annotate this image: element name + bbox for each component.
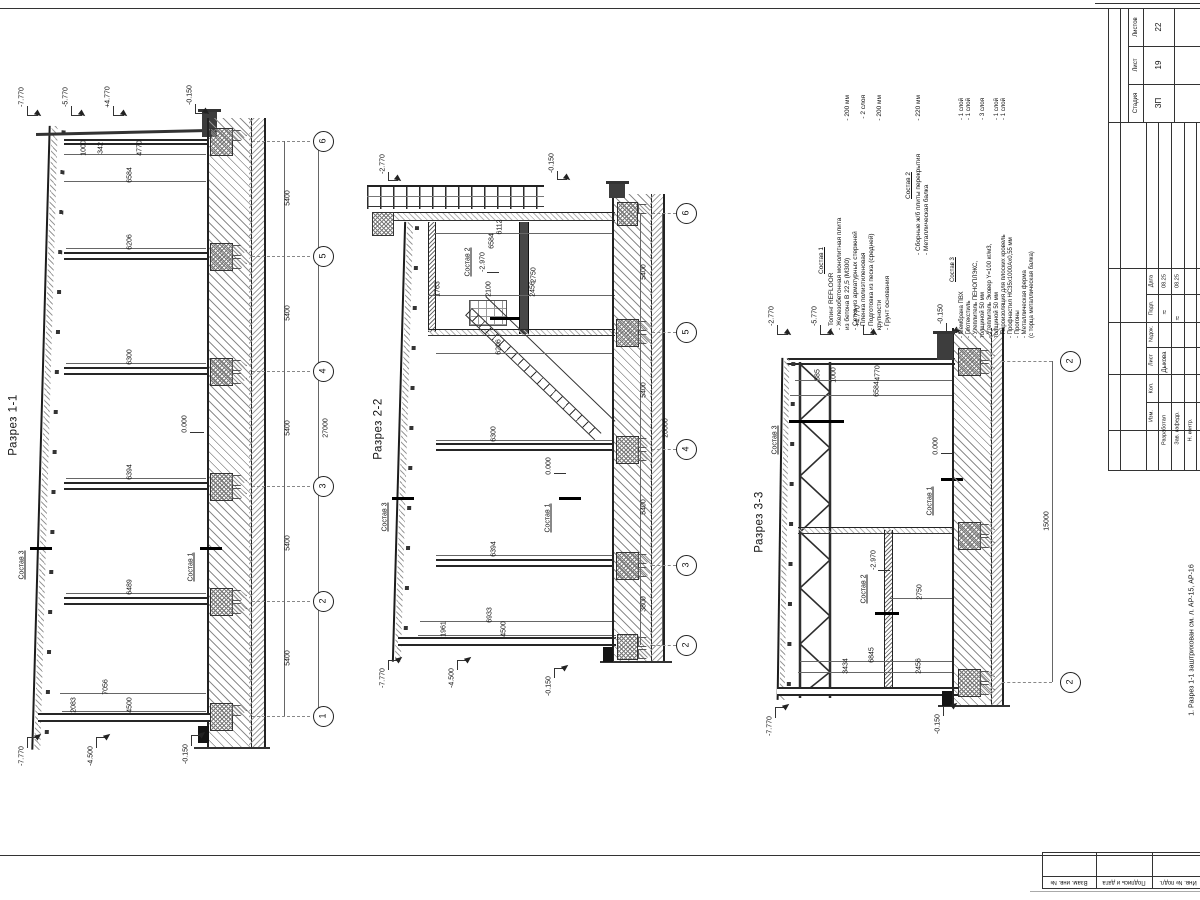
frame-bottom-line [0,855,1200,856]
tb-date: 08.25 [1162,274,1168,288]
axis-label: 6 [319,138,328,143]
composition-label: Состав 1 [927,486,934,515]
note-line: толщиной 50 мм- 1 слой [994,98,1001,338]
column [64,367,207,375]
line [457,660,458,670]
note-line: - Сборные ж/б плиты перекрытия- 220 мм [915,95,923,255]
coping-line [606,181,629,184]
dim-line [800,661,952,662]
dim-label: 2456 [916,658,923,674]
note-value: - 2 слоя [860,95,868,119]
note-value: - 1 слой [1001,98,1008,120]
section-mark [200,547,222,550]
line [1042,876,1200,877]
dim-label: 6584 [127,167,134,183]
bay-dim: 5400 [641,382,648,398]
dim-line [66,248,206,249]
signature: ≈ [1174,316,1182,320]
note-text: - Пароизоляция для плоских кровель [1001,234,1008,338]
axis-leader [1002,361,1052,362]
axis-leader [252,141,310,142]
line [190,432,204,433]
note-line: из бетона В 22,5 (М300)- 200 мм [844,95,852,330]
line [1120,8,1121,470]
line [1042,888,1200,889]
line [1108,268,1200,269]
line [1146,122,1147,470]
section-mark [789,420,844,423]
line [1171,122,1172,470]
section-mark [490,317,520,320]
elevation-arrow-icon [394,174,403,183]
anchor [958,669,981,697]
note-line: (с торца металлическая балка) [1029,98,1036,338]
anchor [210,703,233,731]
note-text: - Утеплитель ПЕНОПЛЭКС, [973,261,980,338]
note-line: - Утеплитель ПЕНОПЛЭКС, [973,98,980,338]
wall-hatch [952,328,992,706]
drawing-sheet: Разрез 1-1 [0,0,1200,900]
line [487,272,499,273]
axis-label: 4 [682,446,691,451]
roof-edge [777,358,798,700]
dim-label: 6206 [127,234,134,250]
line [191,735,192,746]
bay-dim: 5400 [285,420,292,436]
dim-line [66,478,206,479]
line [1196,122,1197,470]
note-line: - Сетка из арматурных стержней [852,95,860,330]
composition-label: Состав 2 [465,247,472,276]
note-text: - Сборные ж/б плиты перекрытия [915,154,923,255]
section-mark [30,547,52,550]
dim-label: 1763 [435,281,442,297]
dim-label: 2456 [530,281,537,297]
wall-hatch-2 [249,118,266,748]
elevation-label: -0.150 [935,714,942,734]
dim-label: 6206 [496,339,503,355]
axis-leader [252,486,310,487]
total-dim: 20000 [663,418,670,437]
bay-dim: 5400 [641,264,648,280]
axis-leader [1002,682,1052,683]
anchor [958,522,981,550]
note-text: толщиной 50 мм [980,292,987,338]
axis-leader [252,716,310,717]
dim-label: 1000 [831,367,838,383]
note-line: - Металлическая балка [923,95,931,255]
interior-wall [428,222,436,332]
column [64,482,207,490]
tb-role: Н. контр. [1188,419,1194,442]
axis-label: 5 [319,253,328,258]
section-title: Разрез 2-2 [373,398,385,459]
dim-line [436,555,614,556]
ground-line [194,747,270,749]
dim-label: 6584 [489,233,496,249]
line [27,737,28,748]
note-header: Состав 3 [950,98,957,282]
note-line: - Металлическая ферма [1022,98,1029,338]
line [1143,8,1144,122]
total-dim: 15000 [1044,511,1051,530]
note-value: - 1 слой [994,98,1001,120]
tb-header-cell: Изм. [1149,410,1155,422]
elevation-label: -7.770 [19,746,26,766]
axis-label: 1 [319,713,328,718]
line [1146,347,1200,348]
bay-dim: 5400 [285,535,292,551]
stair-flight [465,308,601,440]
frame-top-line2 [1095,3,1200,4]
signature: ≈ [1161,310,1169,314]
railing-support [372,212,394,236]
dim-label: 6300 [127,349,134,365]
note-line: - Железобетонная монолитная плита [836,95,844,330]
section-title: Разрез 1-1 [8,394,20,455]
line [554,668,555,678]
elevation-label: -0.150 [546,676,553,696]
frame-top-line [0,8,1200,9]
line [1108,322,1200,323]
line [943,706,944,716]
elevation-label: -0.150 [938,304,945,324]
line [1184,122,1185,470]
line [1042,852,1200,853]
elevation-arrow-icon [34,109,43,118]
tb-header-cell: Дата [1149,275,1155,287]
axis-label: 2 [682,642,691,647]
elevation-label: -0.150 [187,85,194,105]
elevation-label: 0.000 [182,415,189,433]
note-value: - 1 слой [966,98,973,120]
elevation-label: -7.770 [19,87,26,107]
total-dim: 27000 [323,418,330,437]
line [1042,852,1043,888]
section-mark [559,497,581,500]
elevation-arrow-icon [563,173,572,182]
dim-label: 7056 [103,679,110,695]
note-value: - 1 слой [959,98,966,120]
line [1128,46,1200,47]
tb-name: Дыкова [1162,352,1168,373]
stamp-label: Взам. инв. № [1050,879,1087,885]
dim-line [1052,361,1053,682]
note-text: - Металлическая балка [923,185,931,255]
note-text: - Геотекстиль [966,301,973,339]
axis-leader [252,371,310,372]
axis-label: 6 [682,210,691,215]
dim-label: 4770 [137,140,144,156]
composition-label: Состав 1 [545,503,552,532]
anchor [210,128,233,156]
dim-label: 6933 [487,607,494,623]
dim-line [436,353,614,354]
stair-handrail [485,296,615,422]
elevation-label: -2.970 [871,550,878,570]
note-text: - Пленка полиэтиленовая [860,253,868,330]
dim-line [318,141,319,716]
note-line: - Топинг REFLOOR [828,95,836,330]
anchor [617,634,638,660]
dim-label: 6584 [874,381,881,397]
dim-line [434,233,614,234]
composition-label: Состав 1 [188,552,195,581]
bay-dim: 5400 [285,650,292,666]
stage-label: Стадия [1133,93,1139,113]
floor-slab [398,637,616,646]
dim-label: 2100 [486,281,493,297]
tb-header-cell: Подп. [1149,301,1155,316]
dim-line [66,363,206,364]
dim-label: 6845 [869,647,876,663]
line [1158,122,1159,470]
elevation-label: -2.770 [380,154,387,174]
notes-sostav-2: Состав 2 - Сборные ж/б плиты перекрытия-… [905,95,931,255]
elevation-label: 0.000 [933,437,940,455]
note-line: - Подготовка из песка (средней) [868,95,876,330]
tb-header-cell: №док. [1149,326,1155,342]
anchor [210,243,233,271]
anchor [958,348,981,376]
sheet-number-value: 19 [1155,61,1163,70]
note-text: - Утеплитель Эковер Y=100 кг/м3, [987,244,994,338]
note-line: - Пароизоляция для плоских кровель- 1 сл… [1001,98,1008,338]
dim-label: 4770 [875,365,882,381]
anchor [210,358,233,386]
interior-wall [519,222,529,334]
dim-line [60,693,206,694]
dim-line [66,593,206,594]
elevation-arrow-icon [120,109,129,118]
elevation-label: -2.770 [769,306,776,326]
notes-sostav-3: Состав 3 - Мембрана ПВХ- 1 слой - Геотек… [950,98,1036,338]
axis-label: 5 [682,329,691,334]
rail-line [367,196,544,197]
dim-label: 6112 [497,219,504,234]
sheet-note: 1. Разрез 1-1 заштрихован см. л. АР-15, … [1189,564,1196,715]
tb-role: Зав. кафедр. [1175,411,1181,444]
note-text: крупности [876,300,884,330]
axis-label: 3 [682,562,691,567]
line [1108,430,1200,431]
tb-date: 08.25 [1175,274,1181,288]
mezzanine-slab [798,527,953,534]
roof-edge [31,126,68,750]
dim-label: 6489 [127,579,134,595]
stamp-label: Подпись и дата [1102,879,1145,885]
elevation-label: -7.770 [767,716,774,736]
elevation-label: 0.000 [546,457,553,475]
note-text: - Топинг REFLOOR [828,273,836,330]
elevation-arrow-icon [784,328,793,337]
sheets-count-value: 22 [1155,23,1163,32]
dim-line [420,621,616,622]
dim-label: 385 [815,369,822,381]
axis-leader [652,645,676,646]
anchor [616,552,639,580]
frame-bottom-line2 [1030,891,1200,892]
note-text: - Железобетонная монолитная плита [836,218,844,330]
note-text: - Профнастил НС35х1000Ах0,55 мм [1008,237,1015,338]
dim-label: 6394 [491,541,498,557]
note-line: - Профнастил НС35х1000Ах0,55 мм [1008,98,1015,338]
axis-leader [252,601,310,602]
dim-label: 1000 [81,140,88,156]
dim-line [62,711,206,712]
rail-line [367,206,544,207]
wall-hatch [207,118,252,748]
roof-slab [394,212,615,221]
note-text: - Прогоны [1015,310,1022,338]
line [1146,294,1200,295]
elevation-label: -4.500 [88,746,95,766]
dim-line [428,295,615,296]
column [436,443,614,451]
composition-label: Состав 3 [382,502,389,531]
sheet-number-label: Лист [1133,58,1139,71]
anchor [210,588,233,616]
line [1108,470,1200,471]
note-header: Состав 1 [818,95,826,274]
note-value: - 200 мм [876,95,884,121]
elevation-arrow-icon [464,654,473,663]
tb-header-cell: Лист [1149,354,1155,366]
note-text: - Подготовка из песка (средней) [868,234,876,331]
stamp-label: Инв. № подл. [1159,879,1196,885]
axis-leader [652,332,676,333]
note-value: - 3 слоя [980,98,987,120]
floor-slab [38,713,210,722]
line [554,473,566,474]
line [878,570,890,571]
dim-line [418,635,616,636]
stage-value: ЗП [1155,98,1163,109]
axis-leader [252,256,310,257]
anchor [616,319,639,347]
note-text: из бетона В 22,5 (М300) [844,258,852,330]
line [1108,374,1200,375]
elevation-arrow-icon [78,109,87,118]
line [1128,8,1129,122]
dim-label: 1961 [441,621,448,637]
bay-dim: 5400 [641,499,648,515]
dim-line [64,181,206,182]
note-text: толщиной 50 мм [994,292,1001,338]
elevation-arrow-icon [103,731,112,740]
elevation-label: -0.150 [183,744,190,764]
notes-sostav-1: Состав 1 - Топинг REFLOOR - Железобетонн… [818,95,892,330]
dim-line [790,395,953,396]
dim-line [798,672,953,673]
dim-label: 6394 [127,464,134,480]
line [1108,122,1200,123]
elevation-label: -0.150 [549,153,556,173]
line [1108,8,1109,470]
note-header: Состав 2 [905,95,913,199]
dim-label: 4500 [127,697,134,713]
dim-label: 342 [98,142,105,154]
note-text: - Сетка из арматурных стержней [852,231,860,330]
line [1174,8,1175,122]
tb-role: Разработал [1162,415,1168,445]
section-mark [392,497,414,500]
note-line: - Мембрана ПВХ- 1 слой [959,98,966,338]
note-line: - Пленка полиэтиленовая- 2 слоя [860,95,868,330]
elevation-arrow-icon [782,701,791,710]
note-line: - Грунт основания [884,95,892,330]
dim-label: 3434 [843,658,850,674]
axis-label: 3 [319,483,328,488]
note-value: - 200 мм [844,95,852,121]
line [96,737,97,748]
bay-dim: 5400 [285,190,292,206]
elevation-label: -5.770 [63,87,70,107]
note-text: (с торца металлическая балка) [1029,251,1036,338]
elevation-arrow-icon [561,662,570,671]
note-line: - Геотекстиль- 1 слой [966,98,973,338]
composition-label: Состав 2 [861,574,868,603]
note-text: - Металлическая ферма [1022,270,1029,338]
line [1146,402,1200,403]
line [1128,84,1200,85]
elevation-label: +4.770 [105,86,112,108]
dim-label: 2750 [917,584,924,600]
note-line: - Утеплитель Эковер Y=100 кг/м3, [987,98,994,338]
axis-label: 4 [319,368,328,373]
footing [603,647,613,662]
dim-label: 6300 [491,426,498,442]
section-mark [875,612,899,615]
tb-header-cell: Кол. [1149,383,1155,394]
axis-label: 2 [1066,358,1075,363]
elevation-label: -4.500 [449,668,456,688]
line [775,707,776,718]
line [1152,852,1153,888]
dim-label: 2083 [71,697,78,713]
line [1096,852,1097,888]
note-line: толщиной 50 мм- 3 слоя [980,98,987,338]
note-text: - Грунт основания [884,276,892,330]
note-line: - Прогоны [1015,98,1022,338]
column [436,559,614,567]
line [388,660,389,670]
sheets-count-label: Листов [1133,17,1139,37]
note-line: крупности- 200 мм [876,95,884,330]
bay-dim: 3800 [641,596,648,612]
wall-hatch-2 [990,328,1004,706]
bay-dim: 5400 [285,305,292,321]
anchor [617,202,638,226]
axis-label: 2 [319,598,328,603]
column [64,252,207,260]
column [64,597,207,605]
note-text: - Мембрана ПВХ [959,291,966,338]
dim-line [436,440,614,441]
composition-label: Состав 3 [772,425,779,454]
anchor [616,436,639,464]
parapet [609,184,625,198]
anchor [210,473,233,501]
composition-label: Состав 3 [19,550,26,579]
section-title: Разрез 3-3 [754,491,766,552]
axis-leader [652,565,676,566]
axis-label: 2 [1066,679,1075,684]
dim-label: 4500 [501,621,508,637]
elevation-label: -2.970 [480,252,487,272]
axis-leader [652,449,676,450]
elevation-label: -7.770 [380,668,387,688]
